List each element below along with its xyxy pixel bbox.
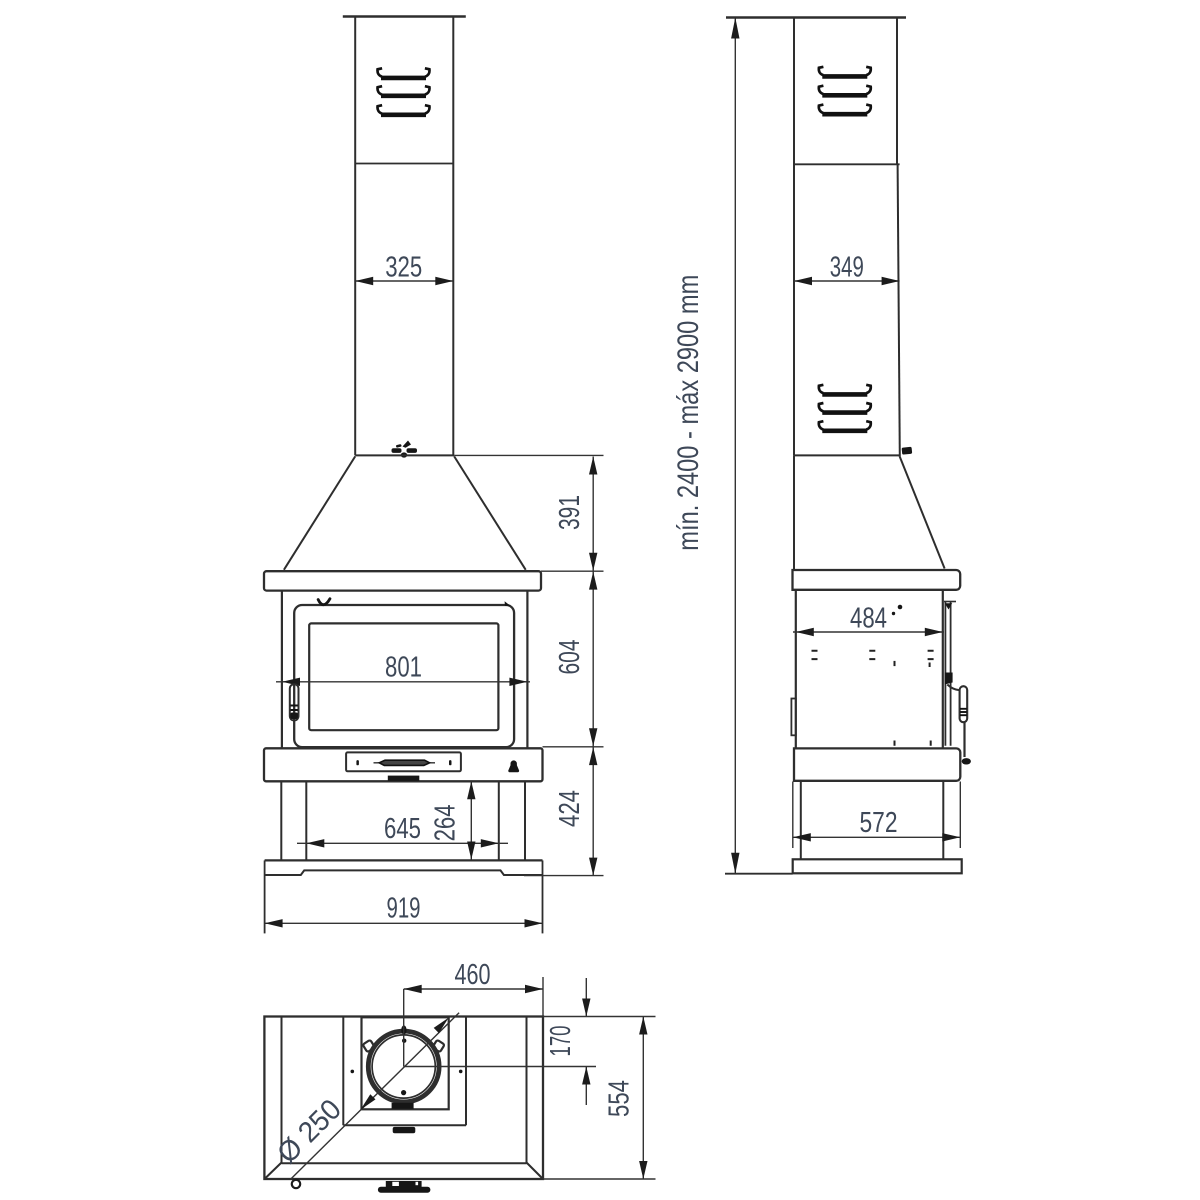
svg-text:349: 349 <box>830 252 864 284</box>
svg-text:264: 264 <box>430 804 462 841</box>
svg-text:572: 572 <box>860 807 898 839</box>
svg-text:170: 170 <box>545 1026 577 1057</box>
svg-text:604: 604 <box>554 640 586 675</box>
svg-text:919: 919 <box>387 893 421 925</box>
svg-text:460: 460 <box>455 959 491 991</box>
svg-text:325: 325 <box>385 252 422 284</box>
svg-text:424: 424 <box>554 790 586 827</box>
svg-text:484: 484 <box>850 602 887 634</box>
svg-text:391: 391 <box>554 495 586 530</box>
svg-text:645: 645 <box>384 813 421 845</box>
svg-text:mín. 2400 - máx 2900 mm: mín. 2400 - máx 2900 mm <box>672 275 705 551</box>
svg-text:801: 801 <box>385 652 422 684</box>
svg-text:554: 554 <box>604 1080 636 1117</box>
